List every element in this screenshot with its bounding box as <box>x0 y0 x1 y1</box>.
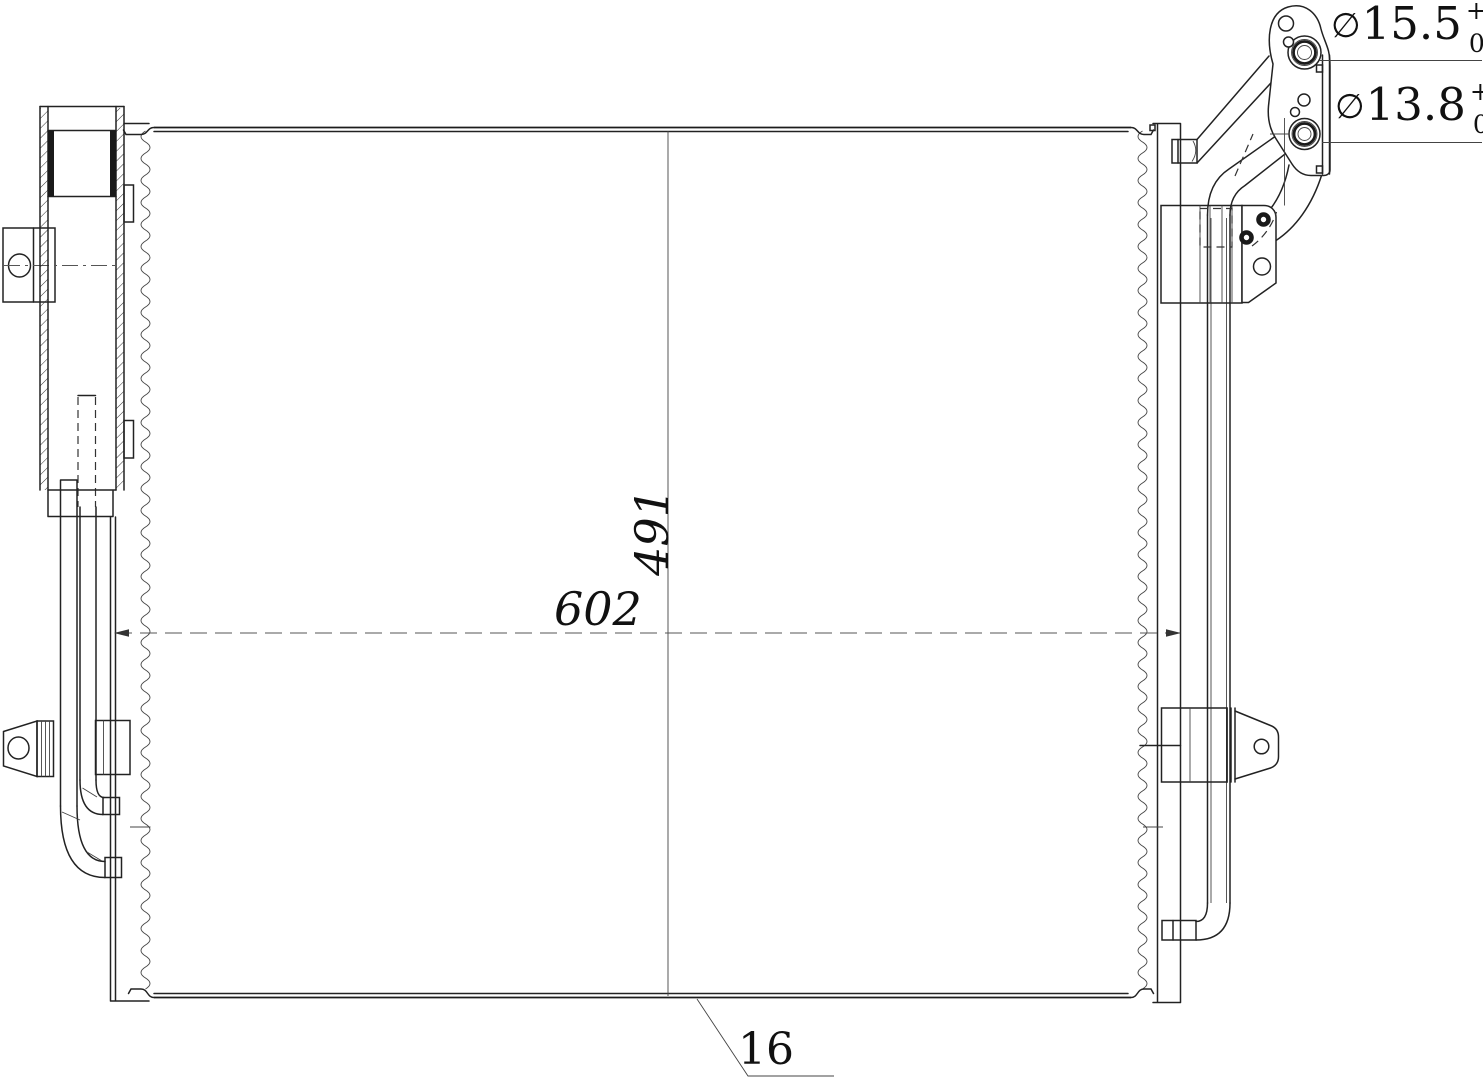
drier-clip-lower <box>124 421 134 459</box>
bracket-hole <box>8 737 29 759</box>
right-fin-edge <box>1138 131 1147 989</box>
right-assembly <box>1140 6 1330 940</box>
right-side-plate <box>1153 124 1181 1003</box>
plate-hole <box>1291 108 1300 117</box>
drier-outlet-pipe <box>61 480 122 878</box>
connector-block <box>1268 6 1330 176</box>
condenser-engineering-drawing: ∅ 15.5 +0.05 0 ∅ 13.8 +0.05 0 602 491 16 <box>0 0 1483 1080</box>
plate-hole <box>1279 16 1294 31</box>
dim-core-thickness: 16 <box>738 1028 794 1072</box>
drier-clip-upper <box>124 185 134 222</box>
desiccant-seal-right <box>110 131 116 197</box>
pipe-stub-lower <box>105 858 122 878</box>
dim-port-bottom: ∅ 13.8 +0.05 0 <box>1335 82 1483 137</box>
leader-lines <box>697 61 1482 1077</box>
drier-inlet-pipe <box>80 507 120 815</box>
diameter-symbol: ∅ <box>1331 1 1361 43</box>
bracket-hole <box>1254 739 1269 754</box>
right-mid-bracket <box>1140 708 1279 782</box>
dim-core-width: 602 <box>554 586 642 632</box>
pipe-clamp-block <box>96 721 131 775</box>
plate-hole <box>1284 37 1294 47</box>
plate-hole <box>1298 94 1310 106</box>
dim-core-height: 491 <box>625 490 671 574</box>
dim-arrow-right <box>1166 629 1181 637</box>
drawing-canvas <box>0 0 1483 1080</box>
receiver-drier <box>3 107 134 878</box>
dim-port-top: ∅ 15.5 +0.05 0 <box>1331 1 1483 56</box>
diameter-symbol: ∅ <box>1335 82 1365 124</box>
upper-mount-bracket <box>3 228 118 302</box>
pipe-stub-bottom <box>1162 921 1196 941</box>
port-13-8 <box>1289 119 1320 150</box>
left-fin-edge <box>141 131 150 989</box>
bolt-bracket-plate <box>1242 206 1277 303</box>
desiccant-seal-left <box>48 131 54 197</box>
